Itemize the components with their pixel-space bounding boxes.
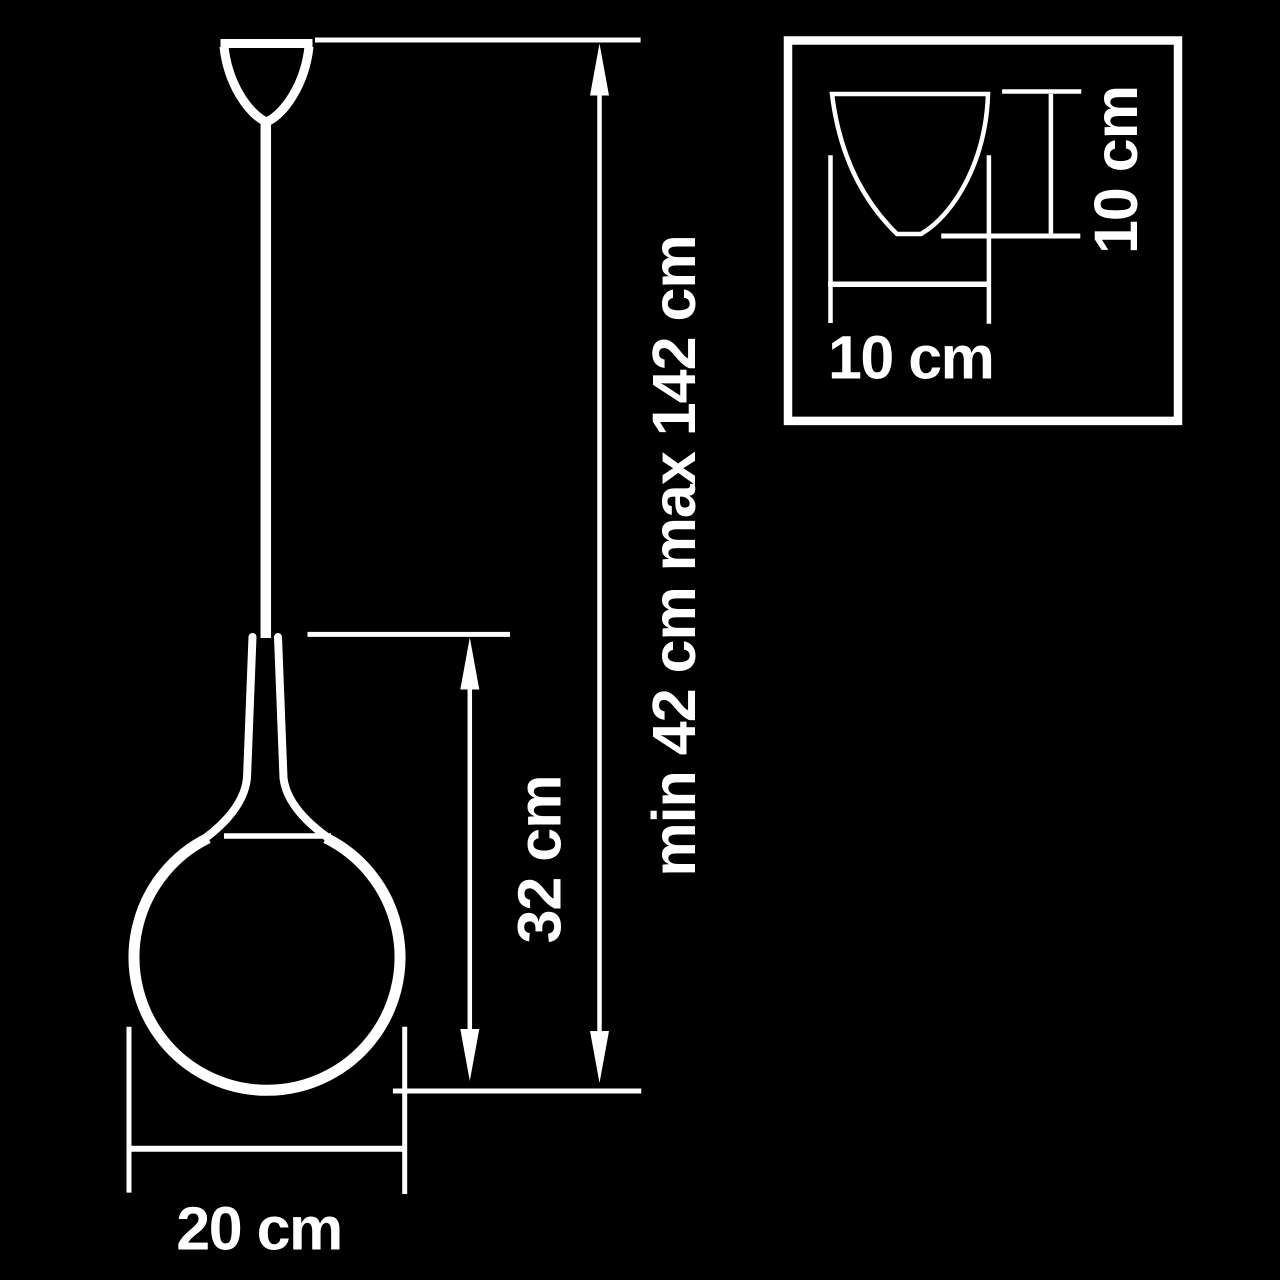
svg-text:10 cm: 10 cm [828,324,993,392]
svg-text:32 cm: 32 cm [506,776,574,944]
svg-text:10 cm: 10 cm [1082,86,1150,254]
svg-text:20 cm: 20 cm [176,1194,341,1262]
svg-text:min 42 cm max 142 cm: min 42 cm max 142 cm [640,235,708,876]
